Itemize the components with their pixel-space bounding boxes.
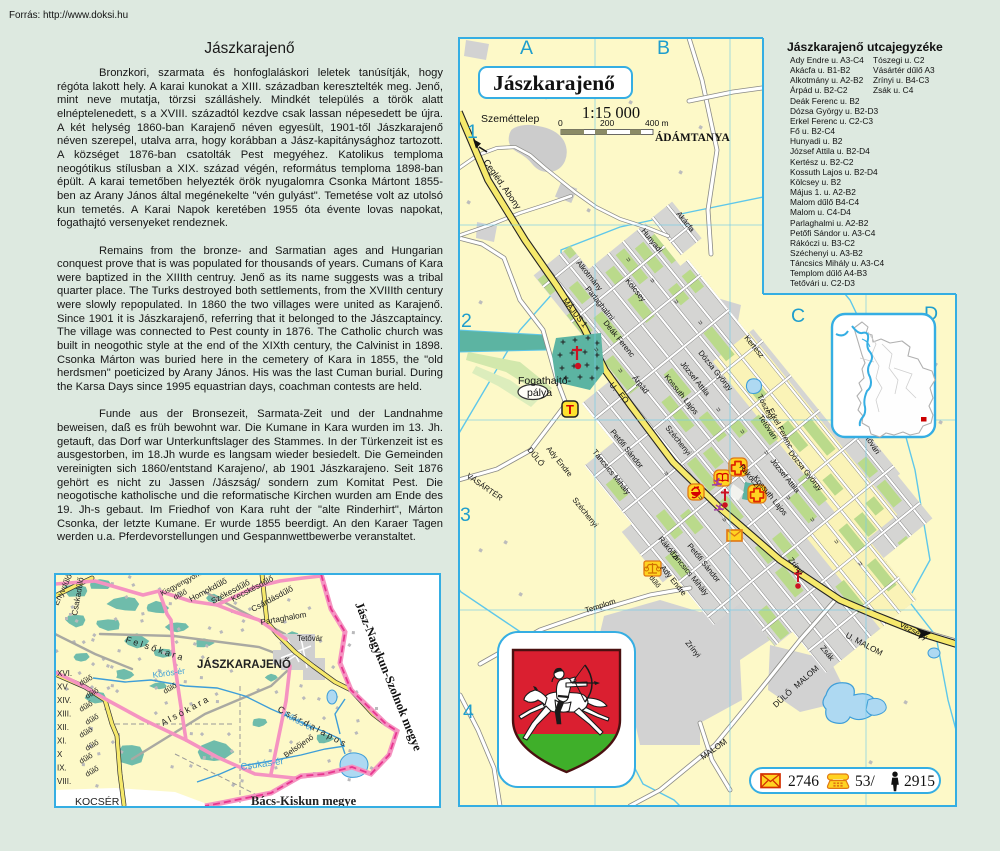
svg-text:Tetővár: Tetővár — [297, 634, 323, 643]
svg-text:1: 1 — [467, 121, 478, 143]
svg-text:JÁSZKARAJENŐ: JÁSZKARAJENŐ — [197, 658, 291, 671]
svg-text:Jászkarajenő: Jászkarajenő — [493, 71, 615, 95]
svg-text:T: T — [566, 402, 574, 417]
svg-text:XVI.: XVI. — [57, 669, 72, 678]
svg-text:Fogathajtó-: Fogathajtó- — [518, 375, 572, 387]
svg-text:XI.: XI. — [57, 737, 67, 746]
svg-text:B: B — [657, 37, 670, 59]
svg-text:3: 3 — [460, 504, 471, 526]
svg-text:pálya: pálya — [527, 387, 552, 399]
svg-text:2915: 2915 — [904, 773, 935, 790]
svg-text:XIV.: XIV. — [57, 696, 71, 705]
svg-text:4: 4 — [463, 701, 474, 723]
svg-text:XV.: XV. — [57, 683, 69, 692]
svg-text:400 m: 400 m — [645, 118, 669, 128]
svg-text:XII.: XII. — [57, 723, 69, 732]
svg-text:0: 0 — [558, 118, 563, 128]
svg-text:ÁDÁMTANYA: ÁDÁMTANYA — [655, 130, 730, 144]
svg-text:C: C — [791, 305, 805, 327]
svg-text:2: 2 — [461, 310, 472, 332]
svg-text:IX.: IX. — [57, 764, 67, 773]
svg-text:A: A — [520, 37, 533, 59]
svg-text:X: X — [57, 750, 63, 759]
svg-text:VIII.: VIII. — [57, 777, 71, 786]
svg-text:53/: 53/ — [855, 773, 876, 790]
svg-text:2746: 2746 — [788, 773, 819, 790]
svg-text:XIII.: XIII. — [57, 710, 71, 719]
svg-text:Szeméttelep: Szeméttelep — [481, 113, 540, 125]
svg-text:200: 200 — [600, 118, 614, 128]
svg-text:Bács-Kiskun megye: Bács-Kiskun megye — [251, 794, 357, 808]
